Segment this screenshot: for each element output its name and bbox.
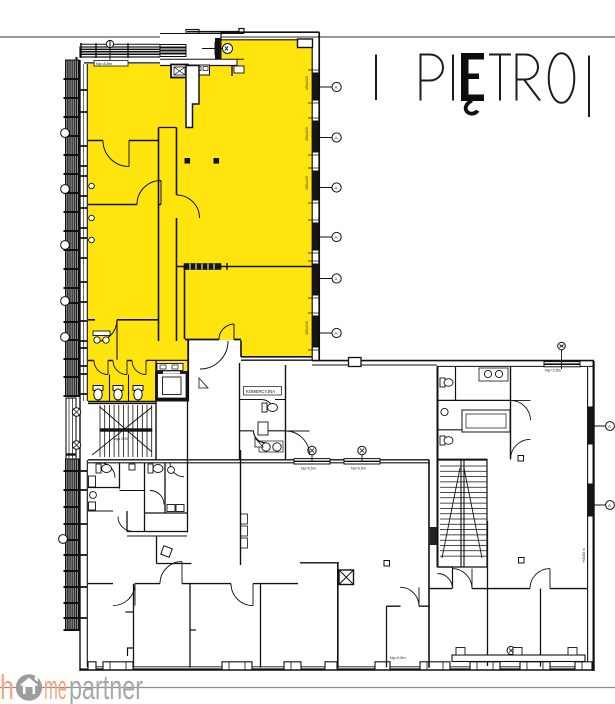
svg-text:A: A [608,424,611,429]
svg-text:150x220: 150x220 [305,76,309,90]
svg-text:h: h [0,669,14,704]
svg-text:Np=8,5m: Np=8,5m [96,61,113,66]
svg-text:150x220: 150x220 [305,321,309,335]
svg-text:A: A [335,85,338,90]
svg-text:150x220: 150x220 [305,127,309,141]
svg-text:A: A [608,503,611,508]
svg-text:Np=0,5m: Np=0,5m [301,467,316,471]
svg-text:A: A [335,136,338,141]
svg-text:Np=0,5m: Np=0,5m [390,656,406,660]
svg-text:wys 2,30: wys 2,30 [114,437,128,441]
svg-text:partner: partner [69,669,143,704]
svg-text:KOMERCYJNA: KOMERCYJNA [246,389,275,394]
svg-text:A: A [335,331,338,336]
svg-text:+0000 a: +0000 a [581,548,586,563]
svg-text:150x220: 150x220 [305,176,309,190]
svg-text:A: A [335,186,338,191]
svg-text:Np=2,5m: Np=2,5m [545,368,562,373]
svg-text:Np=0,5m: Np=0,5m [351,467,366,471]
svg-text:me: me [44,669,67,704]
svg-text:A: A [335,277,338,282]
svg-text:A: A [335,235,338,240]
